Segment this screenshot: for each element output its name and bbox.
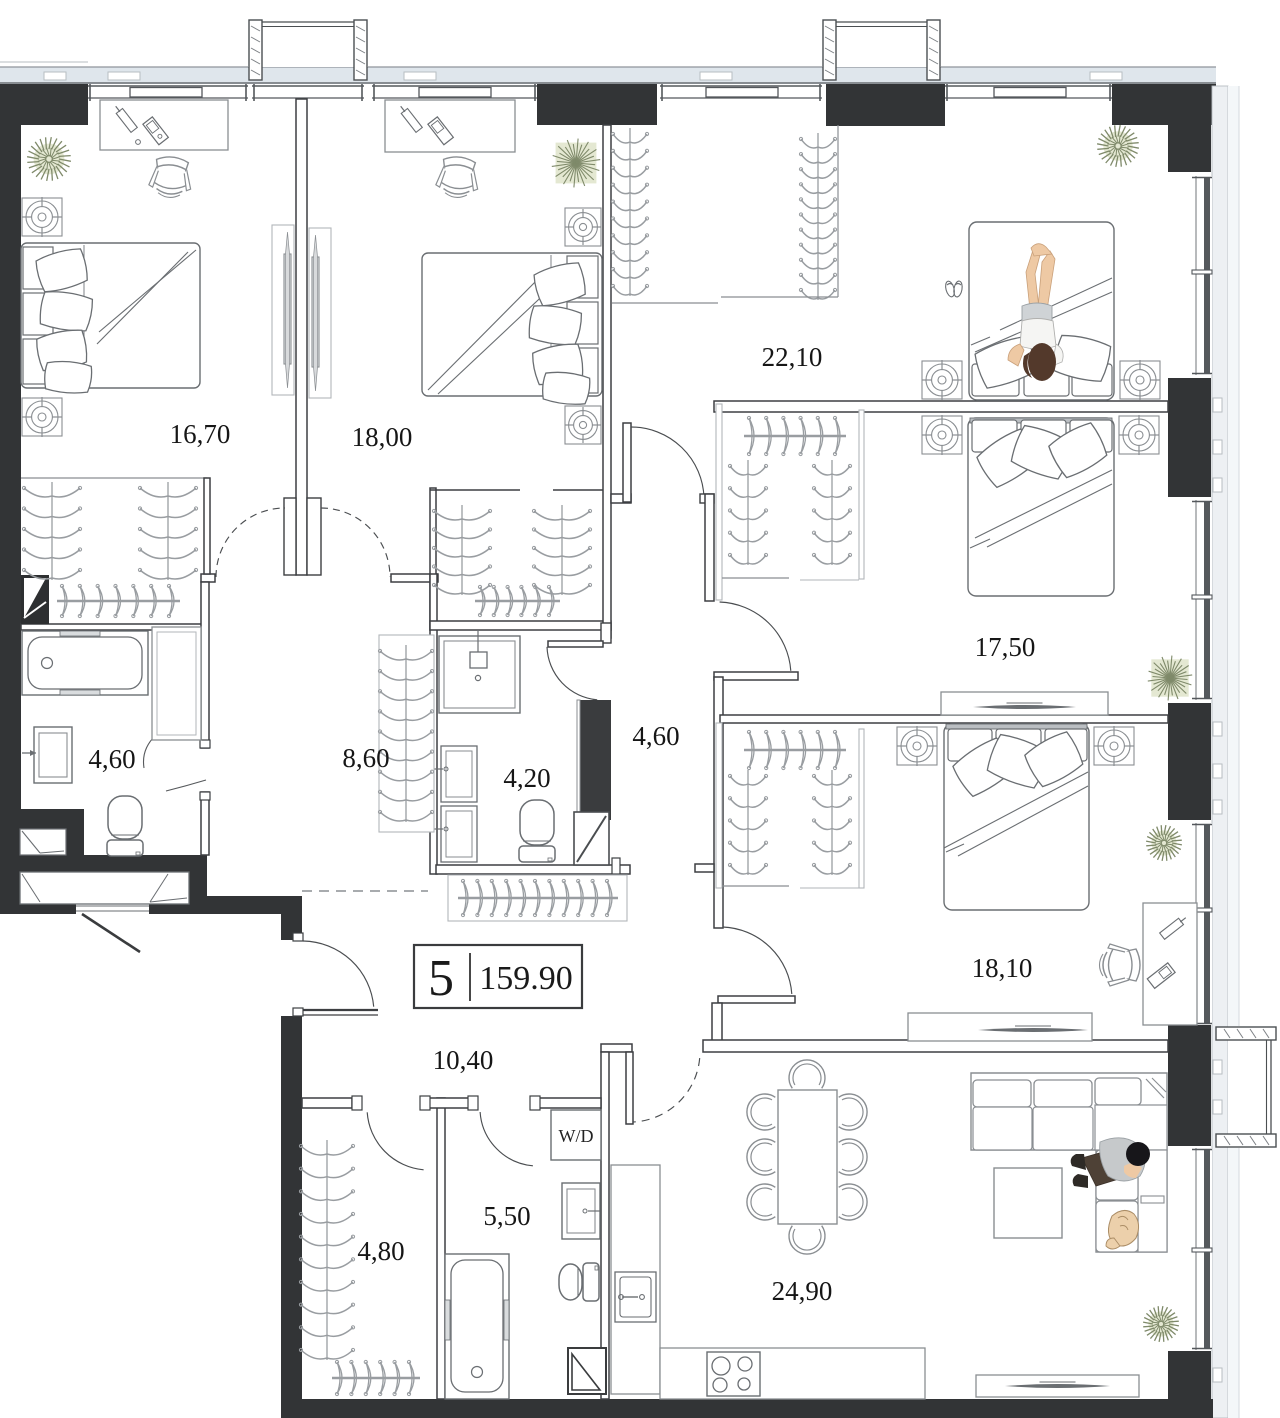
svg-text:16,70: 16,70 <box>170 419 231 449</box>
svg-text:W/D: W/D <box>559 1126 594 1146</box>
svg-text:10,40: 10,40 <box>433 1045 494 1075</box>
svg-text:22,10: 22,10 <box>762 342 823 372</box>
svg-text:4,60: 4,60 <box>88 744 135 774</box>
svg-text:5,50: 5,50 <box>483 1201 530 1231</box>
svg-text:17,50: 17,50 <box>975 632 1036 662</box>
svg-text:24,90: 24,90 <box>772 1276 833 1306</box>
svg-text:18,10: 18,10 <box>972 953 1033 983</box>
svg-text:8,60: 8,60 <box>342 743 389 773</box>
svg-text:4,80: 4,80 <box>357 1236 404 1266</box>
svg-text:4,20: 4,20 <box>503 763 550 793</box>
svg-text:4,60: 4,60 <box>632 721 679 751</box>
svg-text:5: 5 <box>428 950 454 1007</box>
svg-text:159.90: 159.90 <box>479 960 573 997</box>
svg-text:18,00: 18,00 <box>352 422 413 452</box>
